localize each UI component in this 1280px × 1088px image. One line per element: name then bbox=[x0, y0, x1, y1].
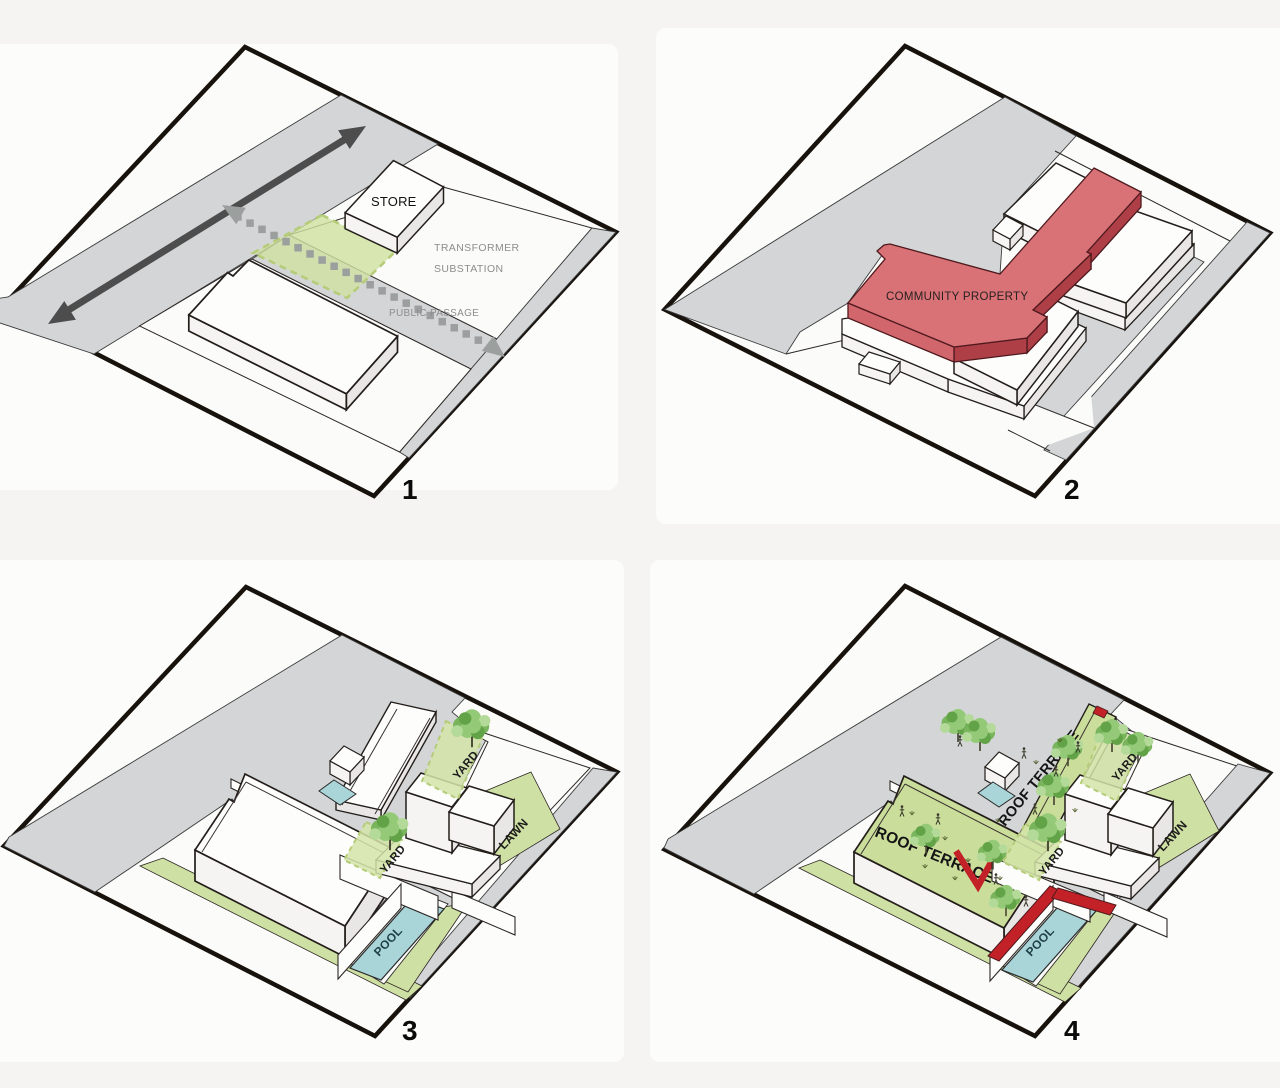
svg-text:3: 3 bbox=[402, 1015, 418, 1046]
svg-text:COMMUNITY PROPERTY: COMMUNITY PROPERTY bbox=[886, 291, 1028, 303]
svg-text:SUBSTATION: SUBSTATION bbox=[434, 263, 504, 275]
svg-text:1: 1 bbox=[402, 474, 418, 505]
svg-text:PUBLIC PASSAGE: PUBLIC PASSAGE bbox=[389, 308, 479, 319]
svg-text:2: 2 bbox=[1064, 474, 1080, 505]
svg-text:4: 4 bbox=[1064, 1015, 1080, 1046]
svg-text:STORE: STORE bbox=[371, 194, 417, 209]
svg-text:TRANSFORMER: TRANSFORMER bbox=[434, 242, 519, 254]
